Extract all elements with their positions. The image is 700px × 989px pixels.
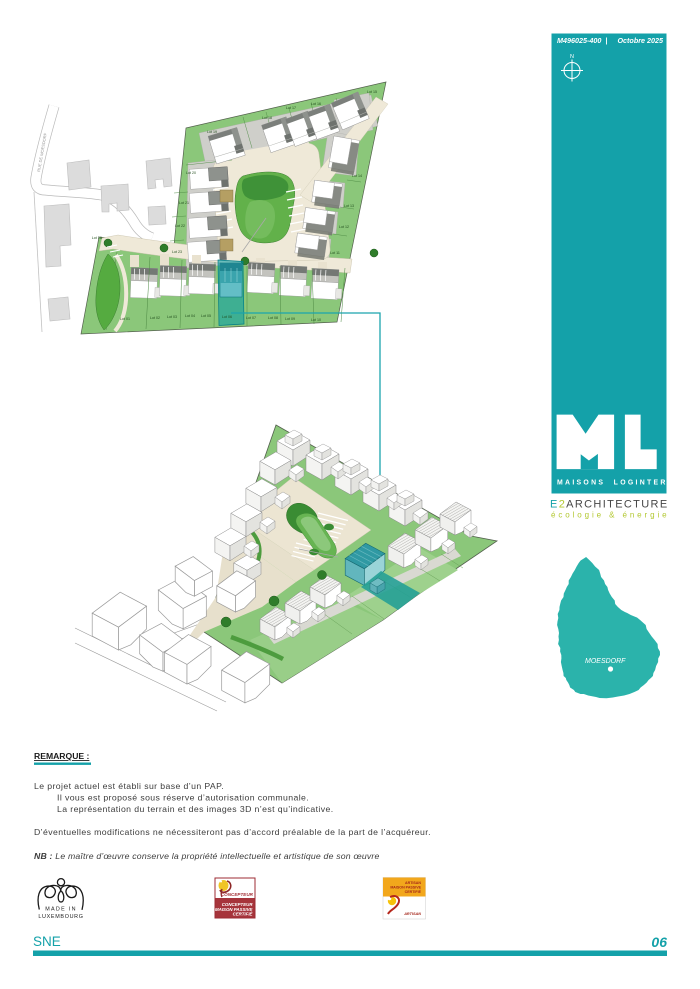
svg-text:Lot 05: Lot 05: [201, 314, 211, 318]
svg-text:Lot 07: Lot 07: [246, 316, 256, 320]
svg-text:Lot 02: Lot 02: [150, 316, 160, 320]
svg-text:Lot 13: Lot 13: [344, 204, 354, 208]
svg-text:Lot 16: Lot 16: [311, 102, 321, 106]
svg-text:Lot 14: Lot 14: [352, 174, 362, 178]
svg-text:Le projet actuel est établi su: Le projet actuel est établi sur base d’u…: [34, 781, 224, 791]
svg-text:LUXEMBOURG: LUXEMBOURG: [38, 914, 83, 920]
svg-text:Il vous est proposé sous réser: Il vous est proposé sous réserve d’autor…: [57, 793, 309, 803]
svg-text:CERTIFIÉ: CERTIFIÉ: [233, 912, 254, 917]
svg-text:MAISONS LOGINTER: MAISONS LOGINTER: [557, 480, 668, 487]
svg-text:NB : Le maître d’œuvre conserv: NB : Le maître d’œuvre conserve la propr…: [34, 851, 380, 861]
svg-text:Lot 01: Lot 01: [120, 317, 130, 321]
svg-text:CONCEPTEUR: CONCEPTEUR: [221, 892, 254, 897]
svg-text:Lot 1A: Lot 1A: [92, 236, 103, 240]
svg-text:Lot 12: Lot 12: [339, 225, 349, 229]
svg-text:Octobre 2025: Octobre 2025: [617, 36, 664, 45]
svg-text:06: 06: [651, 934, 667, 950]
svg-text:ARTISAN: ARTISAN: [403, 912, 421, 916]
svg-text:Lot 10: Lot 10: [311, 318, 321, 322]
svg-text:MADE IN: MADE IN: [45, 907, 77, 913]
svg-text:Lot 11: Lot 11: [330, 251, 340, 255]
svg-text:REMARQUE :: REMARQUE :: [34, 751, 90, 761]
svg-text:Lot 06: Lot 06: [222, 315, 232, 319]
svg-text:Lot 09: Lot 09: [285, 317, 295, 321]
svg-text:D’éventuelles modifications ne: D’éventuelles modifications ne nécessite…: [34, 827, 431, 837]
svg-text:Lot 20: Lot 20: [186, 171, 196, 175]
svg-text:Lot 04: Lot 04: [185, 314, 195, 318]
svg-text:Lot 03: Lot 03: [167, 315, 177, 319]
svg-text:Lot 22: Lot 22: [175, 224, 185, 228]
svg-text:N: N: [570, 54, 574, 60]
svg-text:Lot 19: Lot 19: [207, 130, 217, 134]
svg-text:Lot 08: Lot 08: [268, 316, 278, 320]
svg-text:Lot 23: Lot 23: [172, 250, 182, 254]
svg-text:ARTISAN: ARTISAN: [405, 881, 421, 885]
svg-text:SNE: SNE: [33, 934, 61, 949]
svg-text:Lot 15: Lot 15: [367, 90, 377, 94]
svg-text:M496025-400 |: M496025-400 |: [557, 36, 607, 45]
svg-text:MAISON PASSIVE: MAISON PASSIVE: [390, 886, 421, 890]
svg-text:Lot 17: Lot 17: [286, 106, 296, 110]
svg-text:E2ARCHITECTURE: E2ARCHITECTURE: [550, 499, 669, 511]
svg-text:La représentation du terrain e: La représentation du terrain et des imag…: [57, 804, 334, 814]
svg-text:MOESDORF: MOESDORF: [585, 658, 626, 665]
svg-text:écologie & énergie: écologie & énergie: [551, 511, 669, 520]
svg-text:Lot 21: Lot 21: [179, 201, 189, 205]
svg-text:Lot 18: Lot 18: [262, 116, 272, 120]
svg-text:CERTIFIÉ: CERTIFIÉ: [405, 889, 422, 894]
